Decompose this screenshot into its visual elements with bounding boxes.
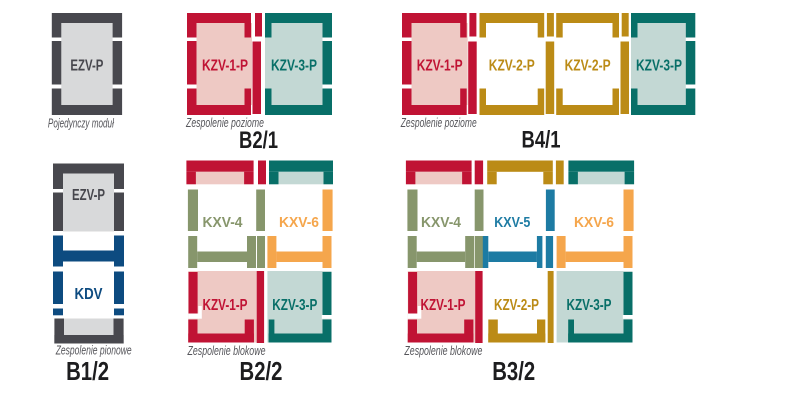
svg-text:Pojedynczy moduł: Pojedynczy moduł [48,117,115,131]
svg-text:EZV-P: EZV-P [72,187,105,204]
svg-text:KZV-3-P: KZV-3-P [636,57,682,74]
svg-text:KZV-2-P: KZV-2-P [494,297,539,314]
svg-text:KXV-5: KXV-5 [494,214,530,231]
svg-text:EZV-P: EZV-P [70,57,103,74]
svg-text:KZV-3-P: KZV-3-P [567,297,612,314]
svg-text:KZV-1-P: KZV-1-P [421,297,466,314]
svg-text:KZV-1-P: KZV-1-P [417,57,463,74]
svg-text:KXV-4: KXV-4 [203,214,244,231]
svg-text:KZV-3-P: KZV-3-P [271,57,317,74]
svg-text:KXV-6: KXV-6 [279,214,319,231]
svg-text:B3/2: B3/2 [492,356,535,386]
svg-text:KZV-2-P: KZV-2-P [565,57,611,74]
svg-text:KZV-1-P: KZV-1-P [203,297,248,314]
svg-text:B4/1: B4/1 [522,127,561,154]
svg-text:KXV-4: KXV-4 [421,214,462,231]
svg-text:B2/1: B2/1 [239,127,278,154]
svg-text:KXV-6: KXV-6 [574,214,614,231]
svg-text:Zespolenie blokowe: Zespolenie blokowe [404,344,483,358]
svg-text:KDV: KDV [75,286,104,303]
svg-text:KZV-1-P: KZV-1-P [202,57,248,74]
svg-text:KZV-3-P: KZV-3-P [272,297,317,314]
svg-text:KZV-2-P: KZV-2-P [489,57,535,74]
svg-text:Zespolenie poziome: Zespolenie poziome [400,116,477,130]
svg-text:B2/2: B2/2 [240,356,283,386]
svg-text:B1/2: B1/2 [66,356,109,386]
